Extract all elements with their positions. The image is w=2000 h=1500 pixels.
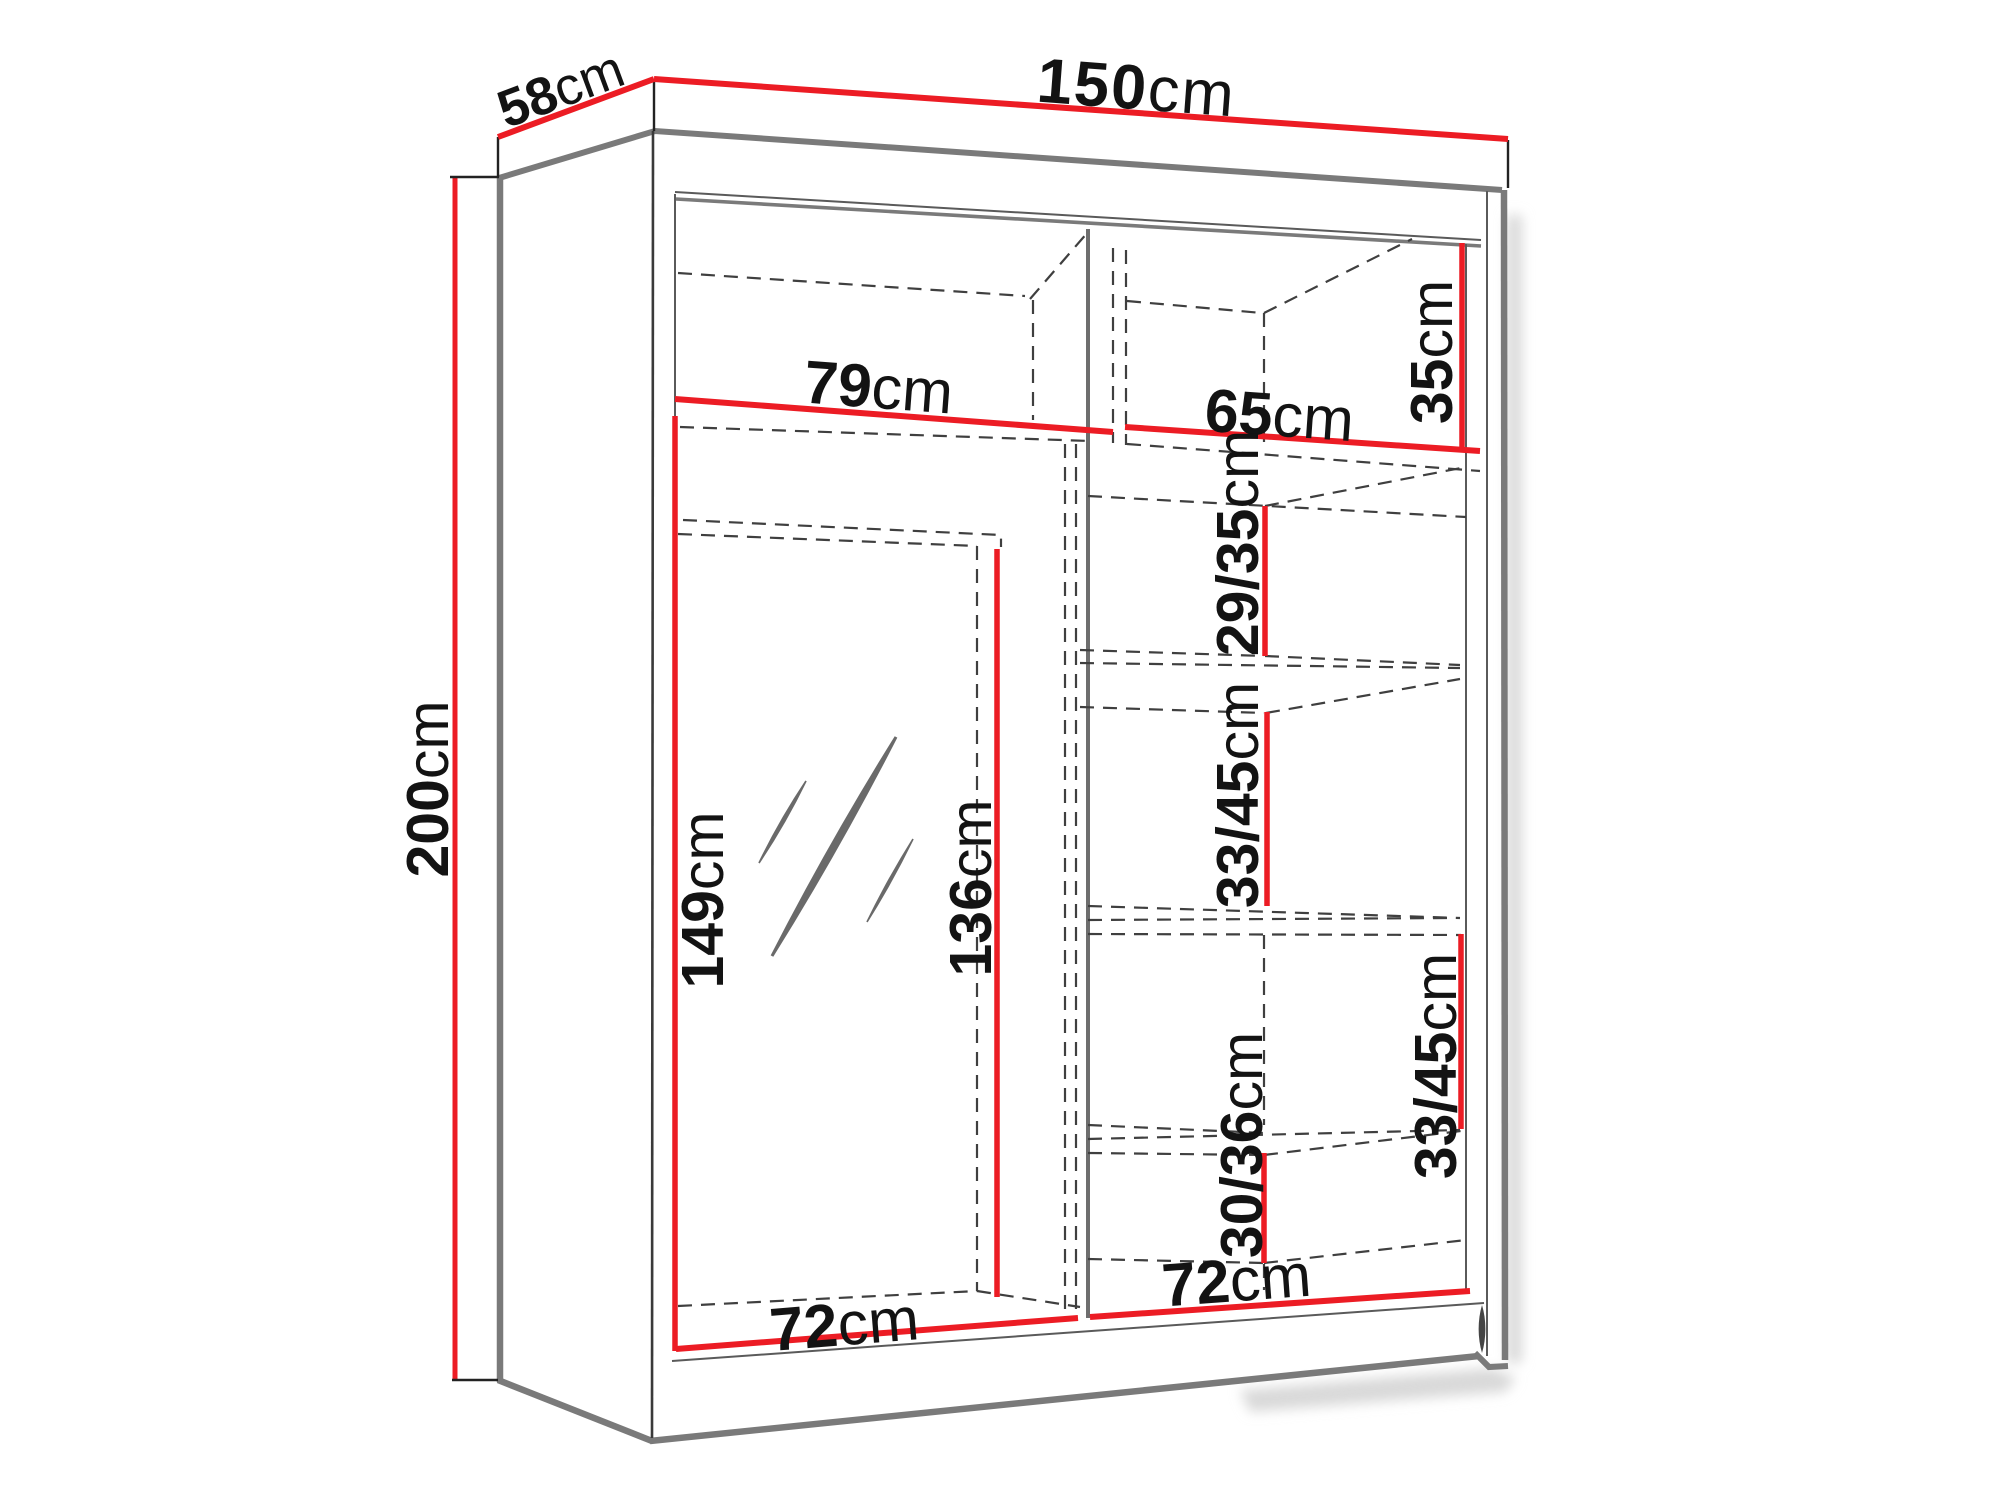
svg-text:29/35cm: 29/35cm — [1205, 430, 1271, 656]
svg-text:200cm: 200cm — [395, 700, 461, 877]
svg-text:149cm: 149cm — [670, 811, 736, 988]
svg-text:33/45cm: 33/45cm — [1403, 953, 1469, 1179]
svg-text:33/45cm: 33/45cm — [1205, 682, 1271, 908]
svg-text:136cm: 136cm — [938, 799, 1004, 976]
svg-text:79cm: 79cm — [802, 348, 956, 427]
svg-text:35cm: 35cm — [1399, 280, 1465, 424]
svg-text:150cm: 150cm — [1035, 46, 1239, 131]
svg-text:30/36cm: 30/36cm — [1209, 1032, 1275, 1258]
svg-text:72cm: 72cm — [767, 1284, 921, 1364]
